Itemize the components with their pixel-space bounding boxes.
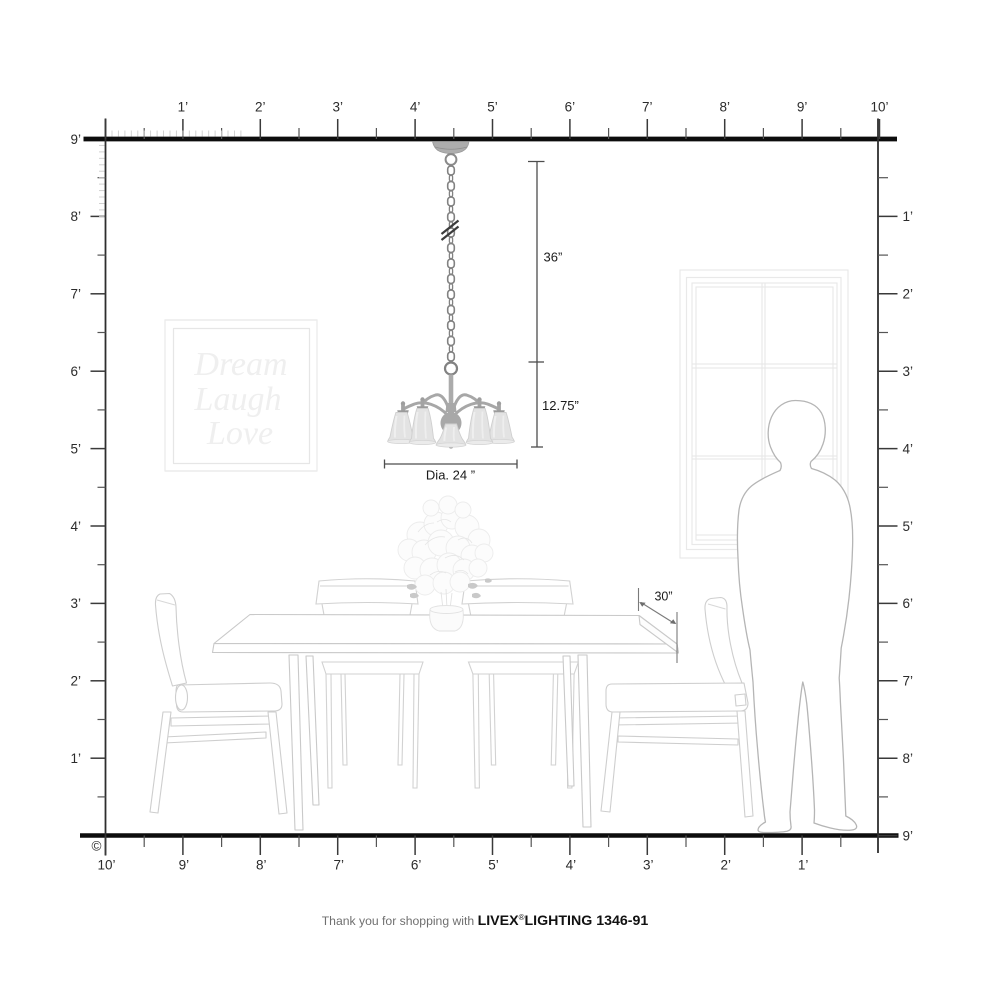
svg-text:10’: 10’ (870, 100, 888, 115)
svg-text:©: © (92, 839, 102, 854)
svg-text:2’: 2’ (255, 100, 266, 115)
svg-text:6’: 6’ (565, 100, 576, 115)
svg-text:Laugh: Laugh (194, 381, 282, 418)
svg-text:8’: 8’ (70, 209, 81, 224)
svg-text:8’: 8’ (256, 858, 267, 873)
svg-text:2’: 2’ (70, 674, 81, 689)
svg-text:6’: 6’ (903, 596, 914, 611)
svg-text:9’: 9’ (179, 858, 190, 873)
svg-text:7’: 7’ (333, 858, 344, 873)
svg-text:5’: 5’ (488, 858, 499, 873)
svg-text:Love: Love (206, 415, 273, 452)
svg-text:4’: 4’ (903, 441, 914, 456)
svg-text:3’: 3’ (70, 596, 81, 611)
svg-text:1’: 1’ (903, 209, 914, 224)
svg-text:Dia. 24 ”: Dia. 24 ” (426, 468, 475, 483)
svg-text:1’: 1’ (70, 751, 81, 766)
svg-text:8’: 8’ (719, 100, 730, 115)
svg-text:30”: 30” (654, 590, 672, 604)
svg-text:Thank you for shopping with LI: Thank you for shopping with LIVEX®LIGHTI… (322, 913, 649, 929)
svg-text:1’: 1’ (798, 858, 809, 873)
svg-text:6’: 6’ (411, 858, 422, 873)
svg-text:5’: 5’ (487, 100, 498, 115)
svg-text:3’: 3’ (332, 100, 343, 115)
svg-text:5’: 5’ (70, 441, 81, 456)
svg-text:36”: 36” (544, 250, 563, 265)
svg-text:9’: 9’ (70, 132, 81, 147)
svg-text:7’: 7’ (70, 287, 81, 302)
svg-text:12.75”: 12.75” (542, 398, 579, 413)
svg-text:Dream: Dream (193, 346, 287, 383)
svg-text:5’: 5’ (903, 519, 914, 534)
svg-text:6’: 6’ (70, 364, 81, 379)
svg-text:9’: 9’ (903, 828, 914, 843)
svg-text:7’: 7’ (642, 100, 653, 115)
svg-text:3’: 3’ (903, 364, 914, 379)
svg-text:4’: 4’ (566, 858, 577, 873)
svg-text:2’: 2’ (720, 858, 731, 873)
svg-text:2’: 2’ (903, 287, 914, 302)
svg-text:3’: 3’ (643, 858, 654, 873)
svg-text:9’: 9’ (797, 100, 808, 115)
svg-text:10’: 10’ (97, 858, 115, 873)
svg-text:8’: 8’ (903, 751, 914, 766)
svg-text:7’: 7’ (903, 674, 914, 689)
svg-text:4’: 4’ (70, 519, 81, 534)
svg-text:1’: 1’ (178, 100, 189, 115)
svg-text:4’: 4’ (410, 100, 421, 115)
